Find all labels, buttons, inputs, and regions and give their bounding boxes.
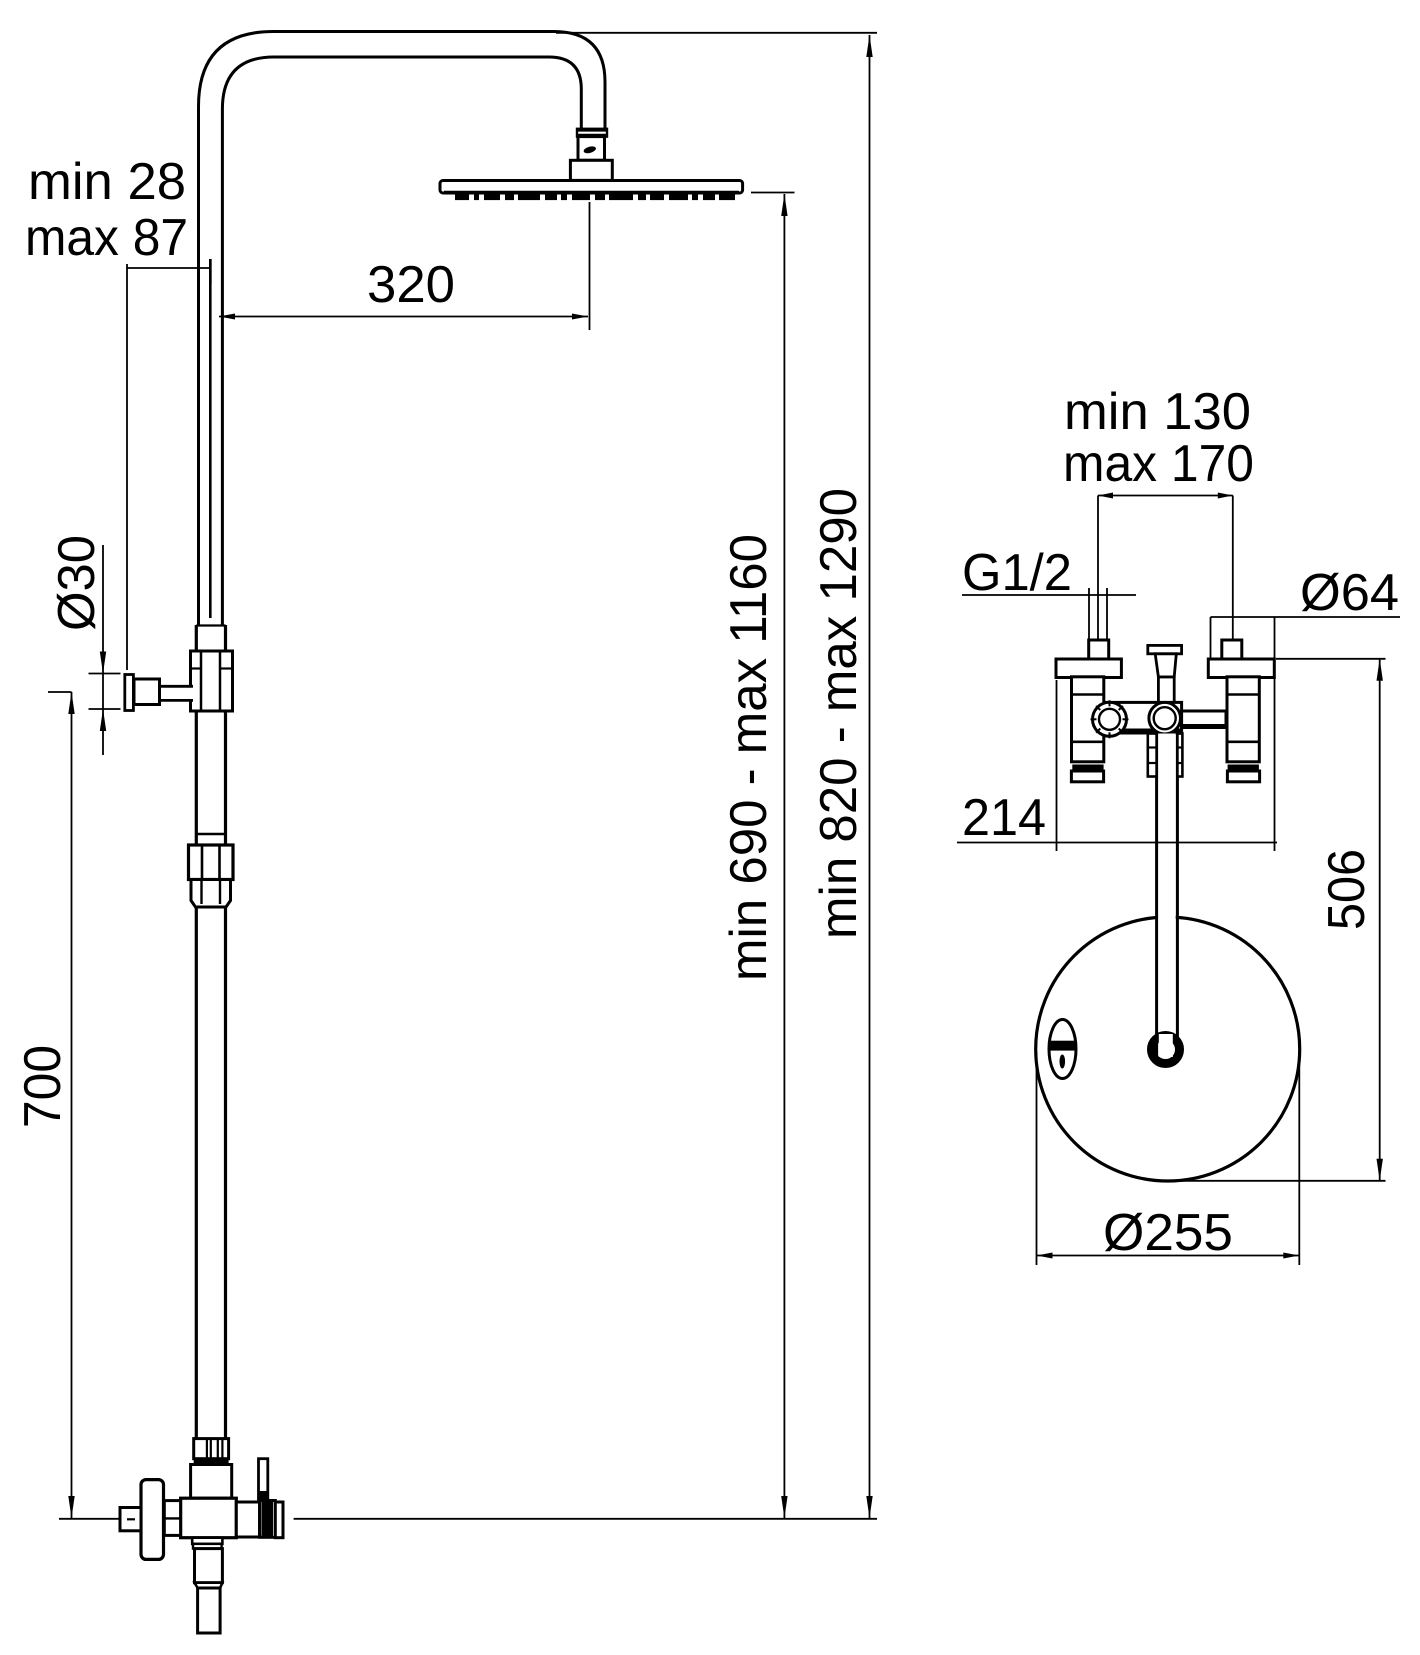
svg-text:Ø30: Ø30	[48, 535, 106, 631]
svg-text:max 87: max 87	[25, 209, 188, 267]
svg-text:320: 320	[367, 256, 455, 314]
svg-text:min 690 - max 1160: min 690 - max 1160	[720, 534, 778, 981]
svg-text:max 170: max 170	[1063, 435, 1254, 493]
svg-text:min 130: min 130	[1064, 383, 1251, 441]
svg-text:min 820 - max 1290: min 820 - max 1290	[810, 488, 868, 939]
svg-text:Ø255: Ø255	[1103, 1204, 1233, 1262]
svg-text:Ø64: Ø64	[1300, 564, 1399, 622]
svg-text:700: 700	[14, 1045, 72, 1128]
svg-text:min 28: min 28	[28, 153, 186, 211]
svg-text:G1/2: G1/2	[962, 544, 1072, 602]
svg-text:214: 214	[962, 789, 1046, 847]
svg-text:506: 506	[1318, 849, 1376, 930]
